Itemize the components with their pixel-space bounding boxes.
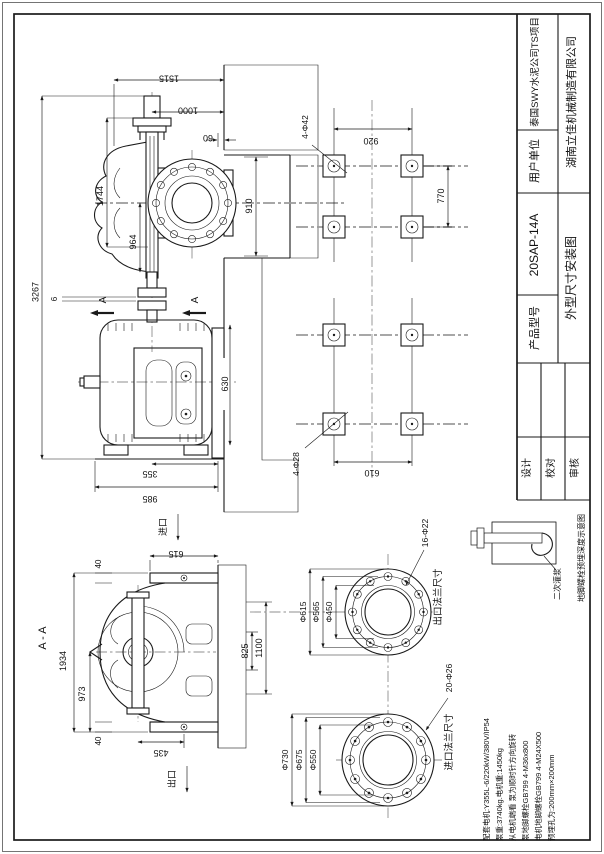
model-label: 产品型号 [527, 306, 541, 350]
dim-630: 630 [220, 376, 230, 391]
title-block: 泰国SWY水泥公司TS项目 用户单位 湖南立佳机械制造有限公司 20SAP-14… [517, 14, 590, 500]
spec-line-rotation: 从电机端看 泵为顺时针方向旋转 [507, 733, 517, 841]
spec-line-motor-bolts: 电机地脚螺栓GB799 4-M24X500 [533, 732, 543, 841]
section-aa-view: A - A [37, 514, 272, 792]
dim-phi615: Φ615 [298, 601, 308, 622]
label-20-phi26: 20-Φ26 [444, 663, 454, 692]
motor-anchor-holes [323, 324, 423, 435]
dim-40-top: 40 [94, 559, 103, 568]
dim-60: 60 [203, 133, 213, 143]
dim-435: 435 [153, 748, 168, 758]
dim-985: 985 [142, 494, 157, 504]
dim-825: 825 [240, 643, 250, 658]
dim-phi450: Φ450 [324, 601, 334, 622]
signoff-grid: 设计 校对 审核 [517, 363, 590, 500]
label-16-phi22: 16-Φ22 [420, 518, 430, 547]
dim-610: 610 [364, 468, 379, 478]
dim-1100: 1100 [254, 638, 264, 657]
spec-line-pump-bolts: 泵地脚螺栓GB799 4-M36x800 [520, 741, 530, 841]
signoff-check: 校对 [544, 458, 557, 478]
outlet-label: 出口 [166, 770, 177, 788]
dim-973: 973 [77, 686, 87, 701]
dim-910: 910 [244, 198, 254, 213]
drawing-canvas: A A 1515 1000 60 1744 964 3267 [0, 0, 604, 854]
model-value: 20SAP-14A [527, 214, 541, 277]
anchor-bolt-detail: 二次灌浆 地脚螺栓预埋深度示意图 [471, 514, 586, 602]
spec-line-weight: 泵重:3740kg.电机重:1450kg [494, 748, 504, 841]
dim-1934: 1934 [58, 651, 68, 671]
customer-label: 用户单位 [527, 139, 541, 183]
manufacturer-name: 湖南立佳机械制造有限公司 [564, 36, 578, 168]
coupling [138, 272, 166, 322]
spec-line-holes: 预埋孔为:200mm×200mm [546, 755, 556, 841]
customer-value: 泰国SWY水泥公司TS项目 [529, 17, 541, 127]
dim-615: 615 [168, 549, 183, 559]
section-letter-left: A [98, 296, 109, 303]
dim-1000: 1000 [178, 106, 198, 116]
dim-phi675: Φ675 [294, 749, 304, 770]
signoff-audit: 审核 [568, 458, 581, 478]
spec-line-motor: 配套电机:Y355L-6/220kW/380V/IP54 [481, 718, 491, 841]
dim-770: 770 [436, 188, 446, 203]
dim-964: 964 [128, 234, 138, 249]
dim-1515: 1515 [159, 74, 179, 84]
dim-920: 920 [363, 136, 378, 146]
spec-notes: 配套电机:Y355L-6/220kW/380V/IP54 泵重:3740kg.电… [481, 718, 556, 841]
inlet-flange-title: 进口法兰尺寸 [443, 713, 455, 771]
inlet-flange-view: Φ730 Φ675 Φ550 20-Φ26 进口法兰尺寸 [280, 663, 455, 806]
section-pump-body [90, 573, 218, 732]
label-4-phi28: 4-Φ28 [291, 452, 301, 476]
outlet-flange-title: 出口法兰尺寸 [432, 568, 444, 626]
pump-anchor-holes [323, 155, 423, 238]
dim-phi565: Φ565 [311, 601, 321, 622]
dim-40-bottom: 40 [94, 736, 103, 745]
grout-label: 二次灌浆 [552, 568, 562, 600]
signoff-design: 设计 [520, 458, 533, 478]
inlet-label: 进口 [158, 518, 168, 536]
pump-flange [148, 159, 236, 247]
anchor-bolt-plan: 920 770 610 4-Φ42 4-Φ28 [291, 100, 468, 478]
section-letter-right: A [190, 296, 201, 303]
section-title: A - A [37, 626, 49, 650]
dim-phi730: Φ730 [280, 749, 290, 770]
elevation-view: A A 1515 1000 60 1744 964 3267 [31, 74, 345, 505]
dim-355: 355 [142, 469, 157, 479]
anchor-detail-caption: 地脚螺栓预埋深度示意图 [576, 514, 586, 602]
drawing-name: 外型尺寸安装图 [563, 236, 578, 320]
dim-3267: 3267 [31, 282, 41, 302]
dim-1744: 1744 [95, 186, 105, 206]
dim-phi550: Φ550 [308, 749, 318, 770]
drawing-sheet: A A 1515 1000 60 1744 964 3267 [0, 0, 604, 854]
dim-6: 6 [50, 296, 59, 301]
label-4-phi42: 4-Φ42 [300, 115, 310, 139]
